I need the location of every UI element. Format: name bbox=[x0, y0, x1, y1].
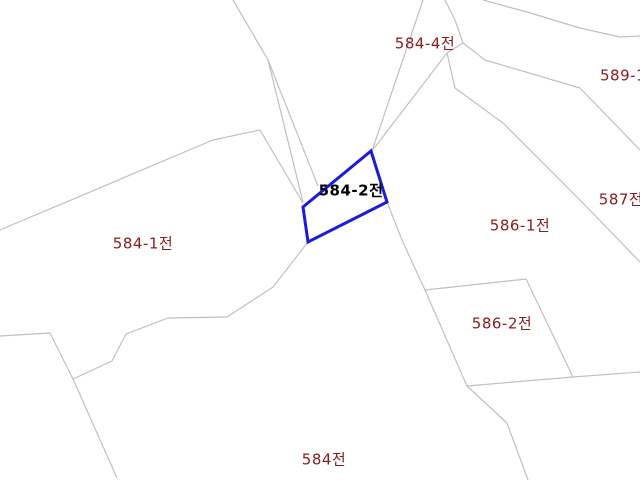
cadastral-map-viewport[interactable]: 584-4전589-1전587전586-1전586-2전584-1전584전58… bbox=[0, 0, 640, 480]
parcel-boundary-line bbox=[0, 130, 303, 230]
parcel-boundary-line bbox=[372, 0, 423, 151]
parcel-boundary-line bbox=[447, 43, 463, 53]
parcel-boundaries-layer bbox=[0, 0, 640, 480]
parcel-boundary-line bbox=[467, 372, 640, 386]
parcel-boundary-line bbox=[445, 0, 463, 43]
parcel-boundary-line bbox=[447, 53, 640, 262]
parcel-boundary-line bbox=[387, 202, 528, 480]
parcel-boundary-line bbox=[73, 242, 308, 379]
parcel-boundary-line bbox=[526, 279, 573, 377]
parcel-boundary-line bbox=[0, 333, 117, 478]
parcel-boundary-line bbox=[483, 0, 640, 37]
parcel-boundary-line bbox=[268, 60, 318, 186]
parcel-boundary-line bbox=[372, 53, 447, 151]
parcel-boundary-line bbox=[463, 43, 640, 150]
selected-parcel-outline-584-2[interactable] bbox=[303, 151, 387, 242]
parcel-boundary-line bbox=[425, 279, 526, 290]
parcel-boundary-line bbox=[233, 0, 303, 202]
